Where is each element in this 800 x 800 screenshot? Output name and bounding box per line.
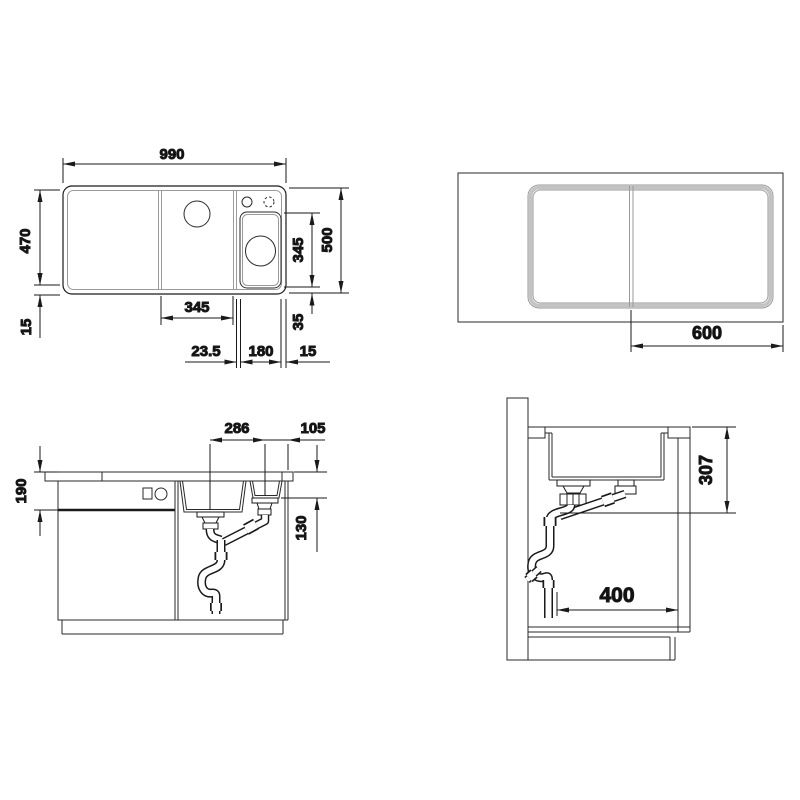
dim-label-15-right: 15 (300, 343, 317, 360)
dishwasher-panel-knob (155, 488, 167, 500)
small-bowl-section (250, 481, 282, 498)
base-cabinet-left (58, 481, 175, 620)
drain-assembly (197, 498, 278, 562)
cutting-board-inner (533, 190, 768, 303)
side-s-trap (527, 546, 550, 618)
small-bowl-outline (240, 212, 281, 288)
dimension-overall-width: 990 (63, 146, 286, 183)
bowl-section-side (545, 433, 668, 480)
dim-label-23-5: 23.5 (191, 343, 220, 360)
worktop-hatch-left-side (528, 427, 545, 438)
dim-label-190: 190 (13, 478, 30, 503)
dim-label-990: 990 (159, 146, 184, 163)
tap-hole (242, 197, 252, 207)
dimension-cabinet-clearance: 400 (557, 584, 678, 616)
dim-label-400: 400 (599, 584, 634, 607)
dim-label-345-bottom: 345 (184, 299, 209, 316)
dimension-small-bowl-gap: 35 (290, 294, 312, 331)
worktop-hatch-right (282, 472, 293, 481)
cabinet-panels (58, 481, 288, 634)
tap-hole-optional (264, 197, 274, 207)
wall-hatch (507, 398, 528, 660)
dishwasher-panel-square (143, 488, 152, 499)
dim-label-500: 500 (319, 227, 336, 252)
dim-label-307: 307 (696, 455, 716, 485)
dimension-main-bowl-width: 345 (161, 296, 233, 325)
sink-outline (63, 186, 286, 294)
main-bowl-drain (184, 201, 210, 227)
worktop-hatch-right-side (668, 427, 690, 438)
dim-label-286: 286 (224, 420, 249, 437)
worktop-outline (458, 173, 783, 322)
cutting-board-outline (528, 185, 773, 308)
worktop-hatch-left (45, 472, 102, 481)
dim-label-470: 470 (17, 228, 34, 253)
dimension-board-position: 600 (631, 310, 783, 352)
dimension-worktop-clearance: 190 (13, 446, 58, 536)
dimension-bottom-rim: 15 (18, 263, 60, 338)
main-bowl-section (180, 481, 246, 512)
dim-label-345-right: 345 (290, 237, 307, 262)
dim-label-105: 105 (300, 420, 325, 437)
dim-label-180: 180 (248, 343, 273, 360)
sink-dimension-drawing: 990 470 15 345 500 (0, 0, 800, 800)
dimension-small-bowl-length: 345 (284, 213, 320, 287)
dim-label-130: 130 (293, 515, 310, 540)
technical-drawing-page: 990 470 15 345 500 (0, 0, 800, 800)
small-bowl-rim-inner (243, 215, 279, 286)
dim-label-600: 600 (692, 323, 722, 343)
board-split-line (630, 186, 634, 307)
front-section-view: 286 105 190 130 (13, 420, 327, 634)
bowl-divider-left (159, 191, 162, 289)
small-bowl-drain (246, 236, 276, 266)
bowl-divider-right (234, 191, 237, 289)
sink-rim-inner (68, 191, 282, 290)
cutting-board-top-view: 600 (458, 173, 783, 352)
sink-top-view: 990 470 15 345 500 (17, 146, 349, 368)
cutting-board-band (531, 188, 771, 306)
side-section-view: 307 400 (507, 398, 736, 660)
dim-label-15-left: 15 (18, 319, 35, 336)
dimension-inner-depth: 470 (17, 190, 60, 285)
s-trap (202, 560, 221, 614)
dim-label-35: 35 (290, 314, 307, 331)
dimension-drain-spacing: 286 105 (210, 420, 326, 510)
